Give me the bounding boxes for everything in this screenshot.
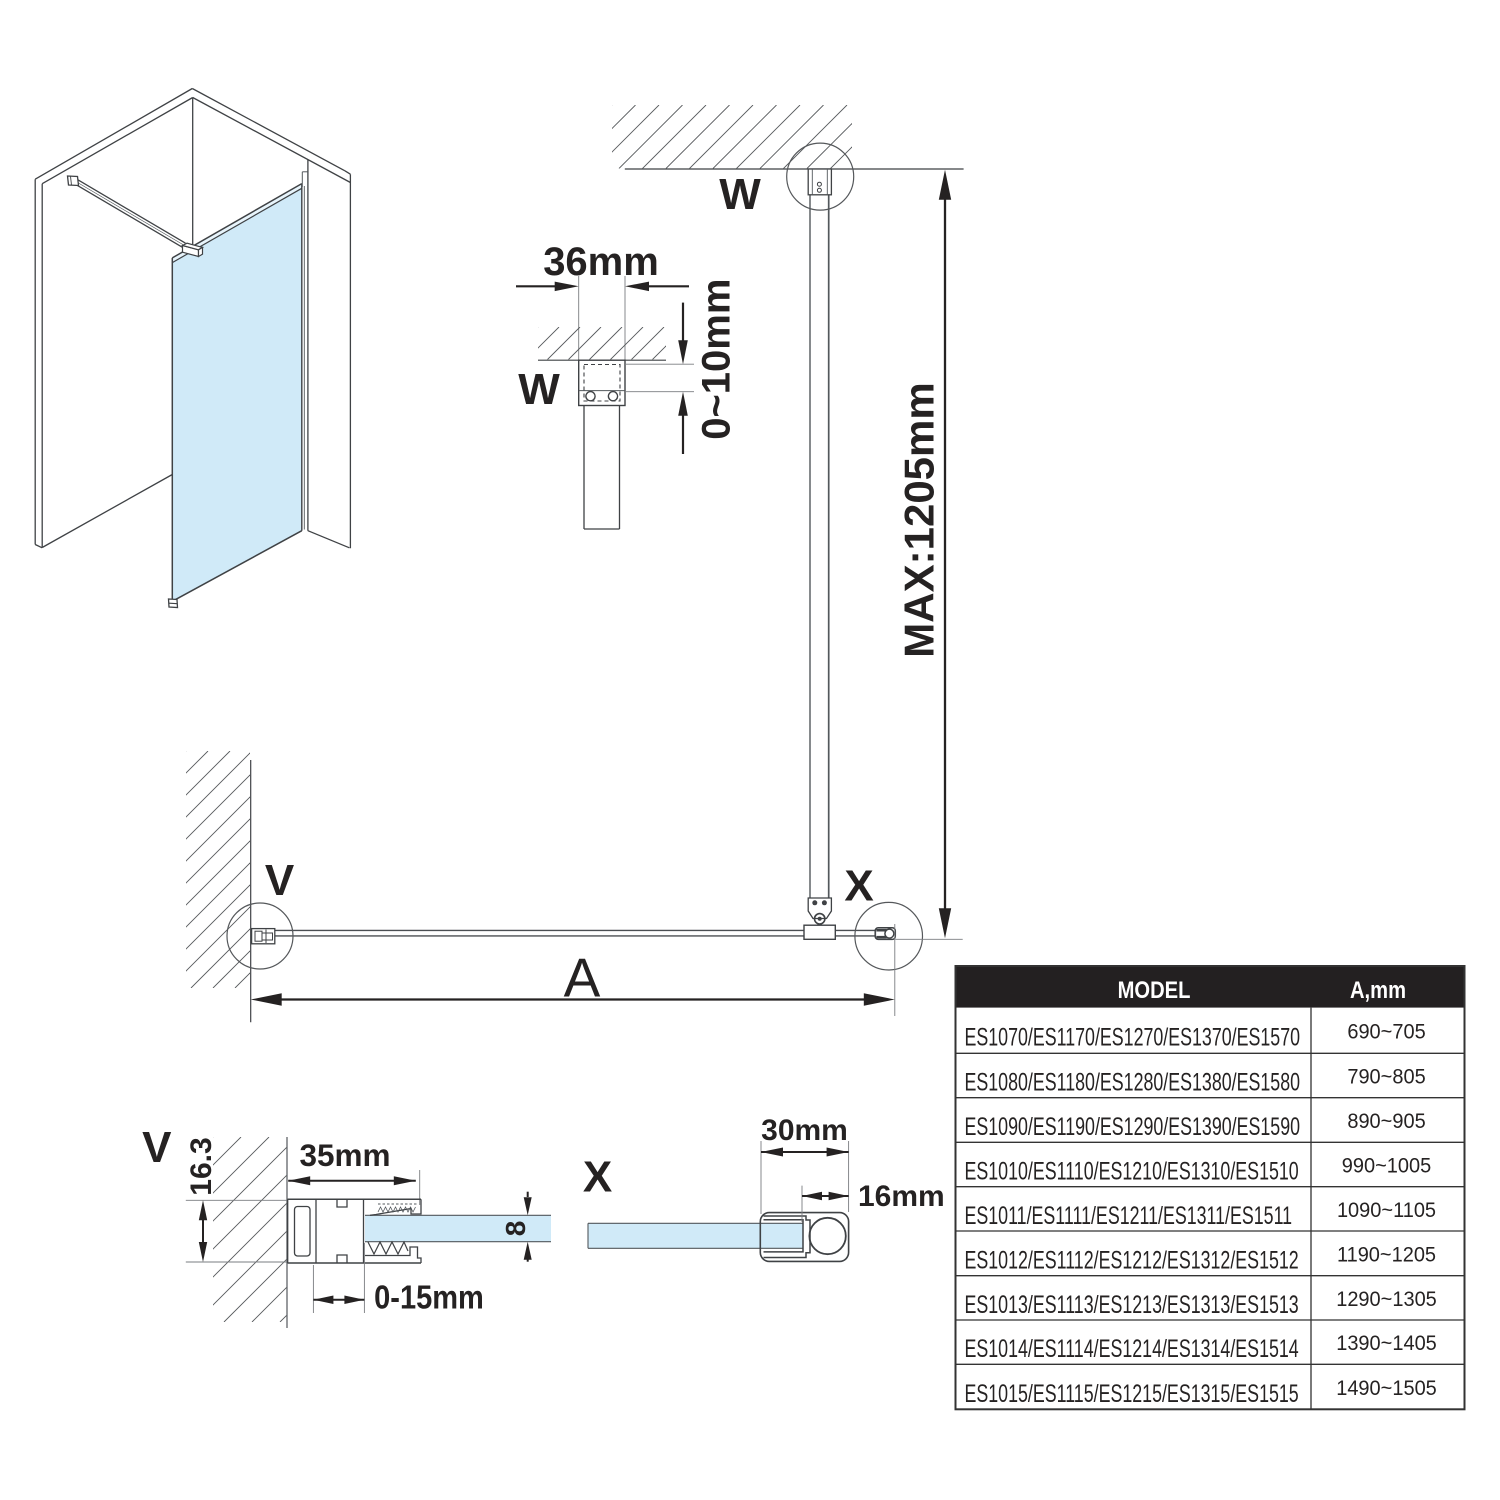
svg-text:ES1080/ES1180/ES1280/ES1380/ES: ES1080/ES1180/ES1280/ES1380/ES1580 — [965, 1067, 1301, 1096]
svg-text:ES1010/ES1110/ES1210/ES1310/ES: ES1010/ES1110/ES1210/ES1310/ES1510 — [965, 1156, 1299, 1185]
svg-text:X: X — [583, 1153, 612, 1202]
svg-text:36mm: 36mm — [543, 240, 659, 284]
svg-text:W: W — [719, 170, 761, 219]
svg-text:1490~1505: 1490~1505 — [1336, 1376, 1437, 1400]
svg-text:ES1090/ES1190/ES1290/ES1390/ES: ES1090/ES1190/ES1290/ES1390/ES1590 — [965, 1112, 1301, 1141]
svg-text:990~1005: 990~1005 — [1342, 1154, 1431, 1178]
svg-text:ES1015/ES1115/ES1215/ES1315/ES: ES1015/ES1115/ES1215/ES1315/ES1515 — [965, 1379, 1299, 1408]
svg-text:ES1070/ES1170/ES1270/ES1370/ES: ES1070/ES1170/ES1270/ES1370/ES1570 — [965, 1022, 1301, 1051]
svg-text:1090~1105: 1090~1105 — [1337, 1198, 1436, 1222]
svg-text:V: V — [265, 856, 295, 905]
svg-text:0-15mm: 0-15mm — [374, 1279, 484, 1316]
svg-text:MODEL: MODEL — [1118, 976, 1191, 1003]
svg-text:1190~1205: 1190~1205 — [1337, 1243, 1436, 1267]
svg-text:ES1012/ES1112/ES1212/ES1312/ES: ES1012/ES1112/ES1212/ES1312/ES1512 — [965, 1245, 1299, 1274]
svg-text:ES1011/ES1111/ES1211/ES1311/ES: ES1011/ES1111/ES1211/ES1311/ES1511 — [965, 1201, 1293, 1230]
svg-text:16.3: 16.3 — [185, 1137, 218, 1195]
svg-text:890~905: 890~905 — [1347, 1109, 1425, 1133]
svg-text:X: X — [844, 862, 873, 911]
svg-text:1390~1405: 1390~1405 — [1336, 1332, 1437, 1356]
svg-text:V: V — [142, 1123, 172, 1172]
svg-text:0~10mm: 0~10mm — [695, 279, 739, 440]
svg-text:16mm: 16mm — [858, 1180, 945, 1213]
svg-text:8: 8 — [500, 1221, 531, 1237]
svg-text:1290~1305: 1290~1305 — [1336, 1287, 1437, 1311]
svg-text:W: W — [518, 365, 560, 414]
svg-text:30mm: 30mm — [761, 1114, 848, 1147]
svg-text:ES1014/ES1114/ES1214/ES1314/ES: ES1014/ES1114/ES1214/ES1314/ES1514 — [965, 1334, 1299, 1363]
svg-text:ES1013/ES1113/ES1213/ES1313/ES: ES1013/ES1113/ES1213/ES1313/ES1513 — [965, 1290, 1299, 1319]
svg-text:A: A — [564, 947, 601, 1009]
svg-text:690~705: 690~705 — [1347, 1020, 1425, 1044]
svg-text:790~805: 790~805 — [1347, 1065, 1425, 1089]
svg-text:MAX:1205mm: MAX:1205mm — [896, 382, 943, 657]
svg-text:35mm: 35mm — [299, 1137, 390, 1173]
svg-text:A,mm: A,mm — [1350, 976, 1406, 1003]
